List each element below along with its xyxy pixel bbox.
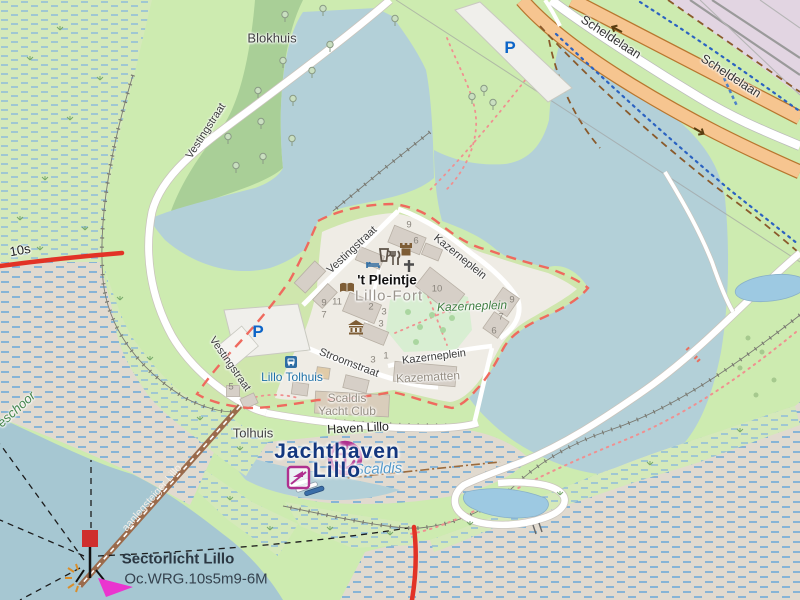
library-book-icon[interactable]: [340, 283, 354, 292]
castle-icon[interactable]: [400, 243, 412, 256]
map-canvas[interactable]: Blokhuis Vestingstraat Vestingstraat Ves…: [0, 0, 800, 600]
bus-stop-icon[interactable]: [285, 356, 297, 368]
map-tiles: [0, 0, 800, 600]
slipway-icon[interactable]: [288, 467, 309, 488]
harbour-anchor-icon[interactable]: [330, 443, 360, 473]
